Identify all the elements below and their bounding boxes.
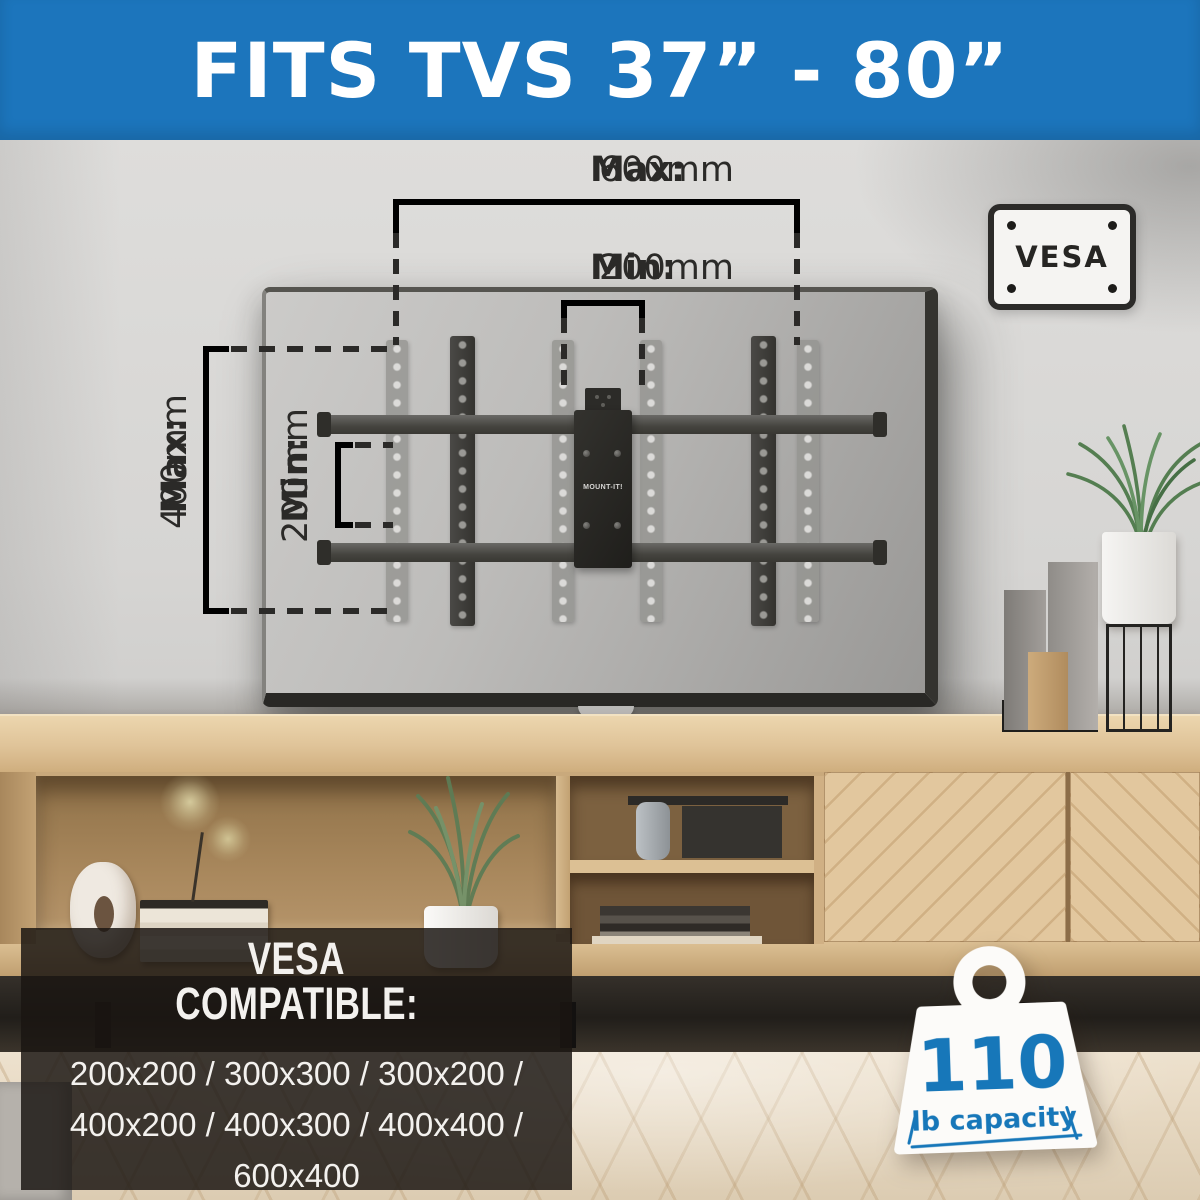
screw-icon	[614, 450, 621, 457]
tv-mount-product-infographic: FITS TVS 37” - 80”	[0, 0, 1200, 1200]
vesa-hole-icon	[1007, 221, 1016, 230]
banner: FITS TVS 37” - 80”	[0, 0, 1200, 140]
dimension-dash	[355, 522, 393, 528]
dimension-bracket-width-max	[393, 199, 800, 233]
vesa-size-line: 600x400	[233, 1150, 360, 1200]
dimension-dash	[393, 233, 399, 345]
screw-icon	[614, 522, 621, 529]
vesa-hole-icon	[1007, 284, 1016, 293]
console-divider-right	[814, 776, 824, 944]
geometric-sculpture-wood	[1028, 652, 1068, 730]
mount-center-plate: MOUNT-IT!	[574, 410, 632, 568]
screw-icon	[583, 522, 590, 529]
vesa-hole-icon	[1108, 284, 1117, 293]
dimension-dash	[794, 233, 800, 345]
vesa-badge-label: VESA	[1015, 240, 1109, 274]
dried-flower	[205, 816, 251, 862]
stacked-books	[600, 906, 750, 938]
mount-arm-ghost	[797, 340, 819, 622]
vesa-size-line: 400x200 / 400x300 / 400x400 /	[70, 1099, 523, 1150]
weight-capacity-icon: 110 lb capacity	[874, 928, 1119, 1184]
dimension-height-max: Max:400mm	[153, 306, 197, 626]
console-door-right	[1070, 772, 1200, 942]
console-divider	[556, 776, 570, 934]
dimension-dash	[561, 318, 567, 386]
mount-arm	[751, 336, 776, 626]
dimension-dash	[355, 442, 393, 448]
potted-plant-right	[1040, 408, 1200, 548]
dark-box	[682, 806, 782, 858]
shelf-board	[592, 936, 762, 944]
vesa-compatible-heading: COMPATIBLE:	[175, 981, 418, 1026]
dimension-bracket-width-min	[561, 300, 645, 318]
vesa-size-line: 200x200 / 300x300 / 300x200 /	[70, 1048, 523, 1099]
vesa-hole-icon	[1108, 221, 1117, 230]
console-side-panel	[0, 772, 36, 944]
plant-pot-right	[1102, 532, 1176, 624]
mount-brand-label: MOUNT-IT!	[574, 484, 632, 491]
dimension-height-min: Min:200mm	[276, 350, 316, 610]
screw-icon	[583, 450, 590, 457]
vesa-badge: VESA	[988, 204, 1136, 310]
wire-plant-stand	[1106, 624, 1172, 732]
console-door-gap	[1066, 772, 1070, 942]
capacity-value: 110	[877, 1024, 1107, 1104]
small-vase	[636, 802, 670, 860]
mount-arm	[450, 336, 475, 626]
mount-arm-ghost	[386, 340, 408, 622]
dimension-dash	[639, 318, 645, 386]
vesa-compatibility-panel: VESA COMPATIBLE: 200x200 / 300x300 / 300…	[21, 928, 572, 1190]
dimension-bracket-height-min	[335, 442, 353, 528]
vesa-compatible-heading: VESA	[248, 936, 345, 981]
console-cubby-shelf	[570, 860, 814, 873]
console-door-left	[824, 772, 1066, 942]
dimension-bracket-height-max	[203, 346, 229, 614]
potted-plant-left	[392, 756, 532, 916]
banner-title: FITS TVS 37” - 80”	[191, 26, 1010, 115]
mount-wall-tab	[585, 388, 621, 412]
